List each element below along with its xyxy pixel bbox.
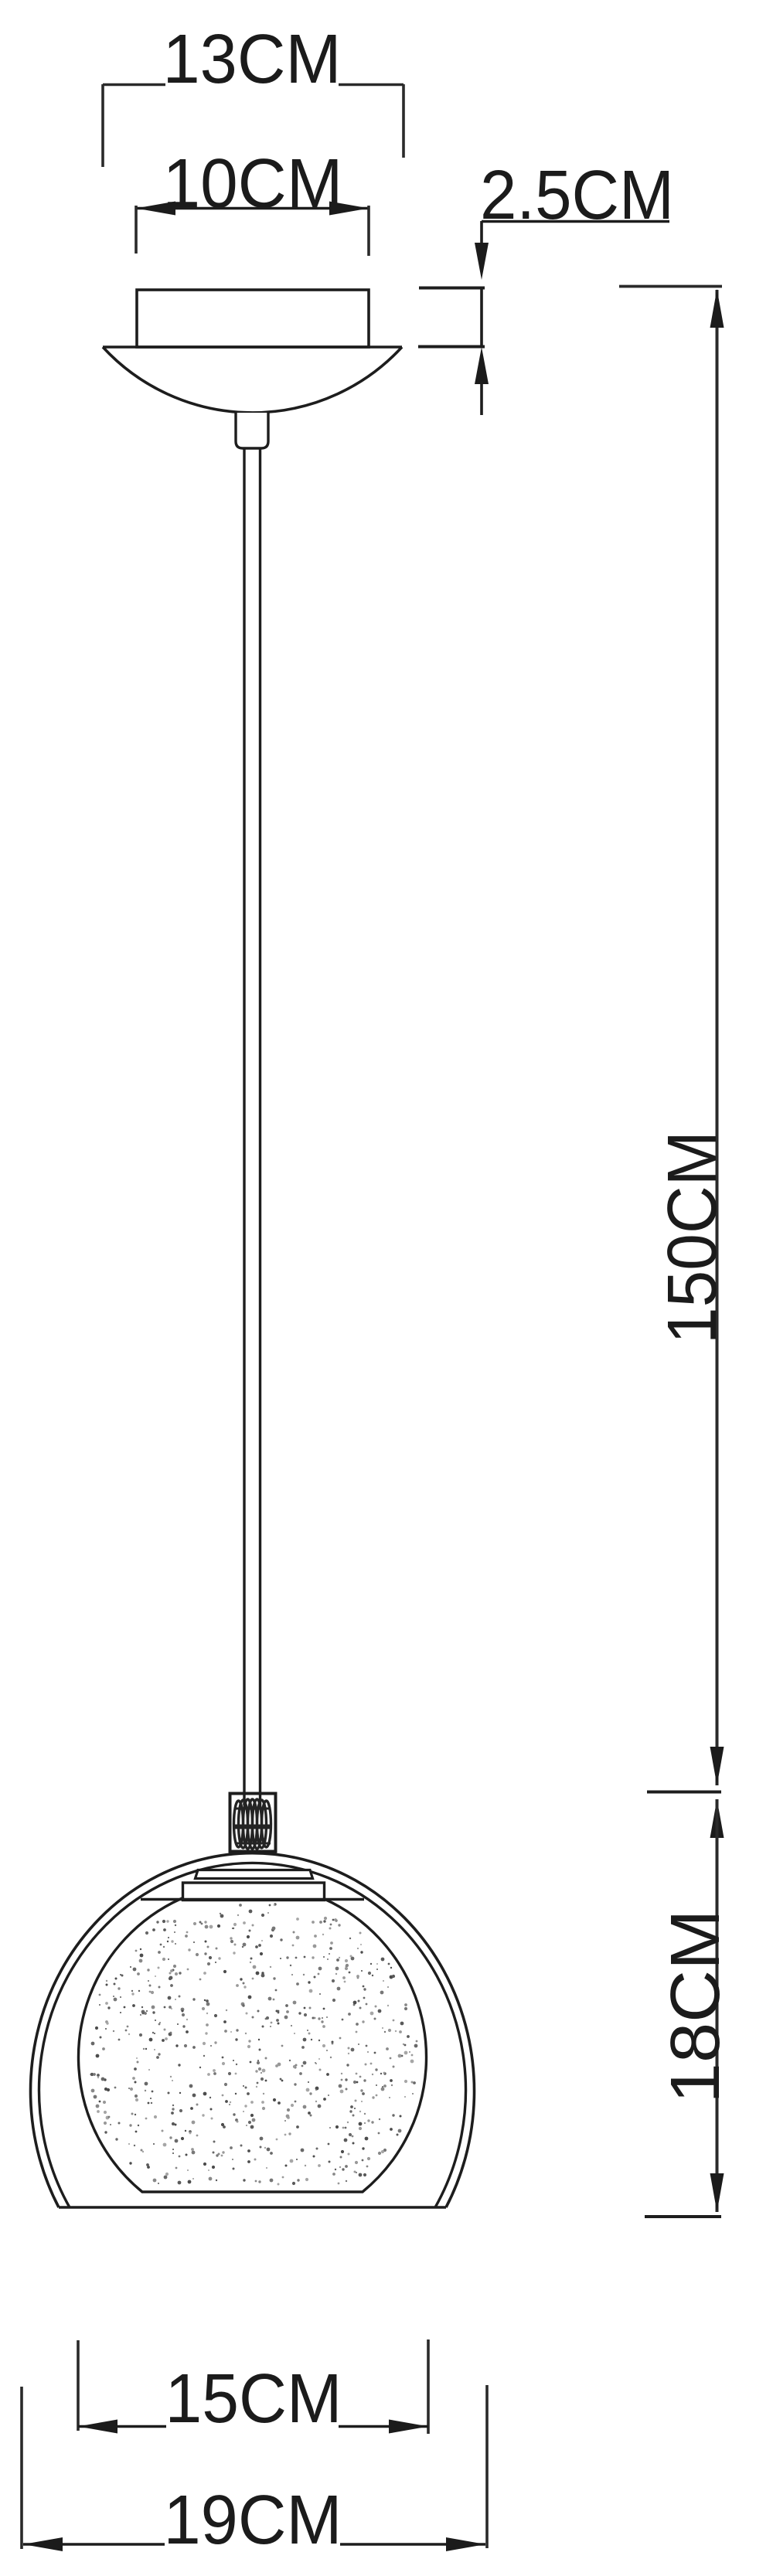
- svg-text:150CM: 150CM: [654, 1131, 731, 1344]
- svg-text:15CM: 15CM: [165, 2360, 342, 2438]
- svg-text:18CM: 18CM: [657, 1910, 734, 2104]
- svg-text:19CM: 19CM: [164, 2482, 342, 2559]
- svg-text:10CM: 10CM: [163, 145, 343, 223]
- svg-text:13CM: 13CM: [163, 21, 342, 98]
